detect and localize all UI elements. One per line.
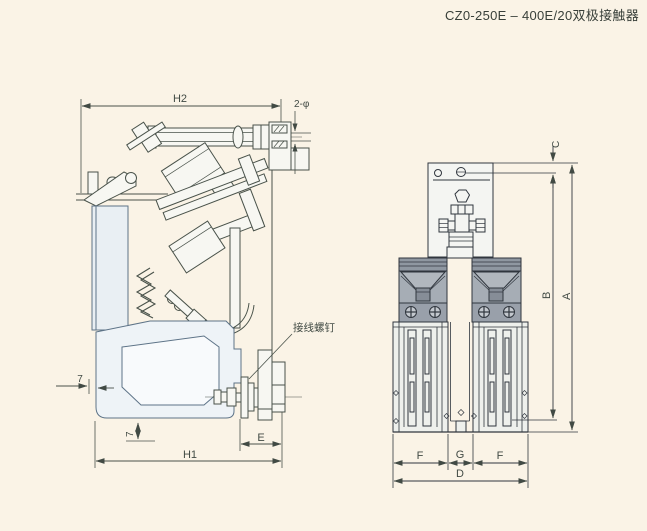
dim-label-7-bottom: 7 [125, 431, 136, 437]
dim-label-7-left: 7 [77, 374, 83, 385]
side-view [56, 99, 311, 468]
dim-label-f-left: F [417, 450, 424, 462]
phillips-screw-icon [430, 307, 441, 318]
dim-label-h1: H1 [183, 449, 197, 461]
front-view [393, 146, 578, 488]
center-pole-gap [451, 322, 470, 432]
arc-chute-left-top [399, 258, 447, 303]
dim-label-c: C [551, 141, 562, 148]
dim-label-f-right: F [497, 450, 504, 462]
contact-mechanism [127, 122, 268, 347]
dim-label-b: B [541, 292, 553, 299]
terminal-screw-label: 接线螺钉 [293, 321, 335, 334]
armature-arm [76, 172, 168, 206]
dim-label-d: D [456, 468, 464, 480]
dim-label-e: E [257, 432, 264, 444]
drawing-canvas: H2 2-φ 7 7 E H1 接线螺钉 C B A F G F D [0, 0, 647, 531]
phillips-screw-icon [504, 307, 515, 318]
technical-drawing-page: CZ0-250E – 400E/20双极接触器 [0, 0, 647, 531]
chute-screw-band [399, 303, 521, 322]
dim-label-a: A [561, 292, 573, 300]
phillips-screw-icon [479, 307, 490, 318]
arc-chute-left-bottom [393, 322, 448, 432]
dim-label-2-holes: 2-φ [294, 99, 310, 110]
arc-chute-right-top [472, 258, 521, 303]
leaf-springs [137, 268, 155, 318]
dim-label-g: G [456, 449, 465, 461]
magnet-yoke [92, 206, 128, 330]
phillips-screw-icon [406, 307, 417, 318]
arc-chute-right-bottom [473, 322, 528, 432]
dim-label-h2: H2 [173, 93, 187, 105]
